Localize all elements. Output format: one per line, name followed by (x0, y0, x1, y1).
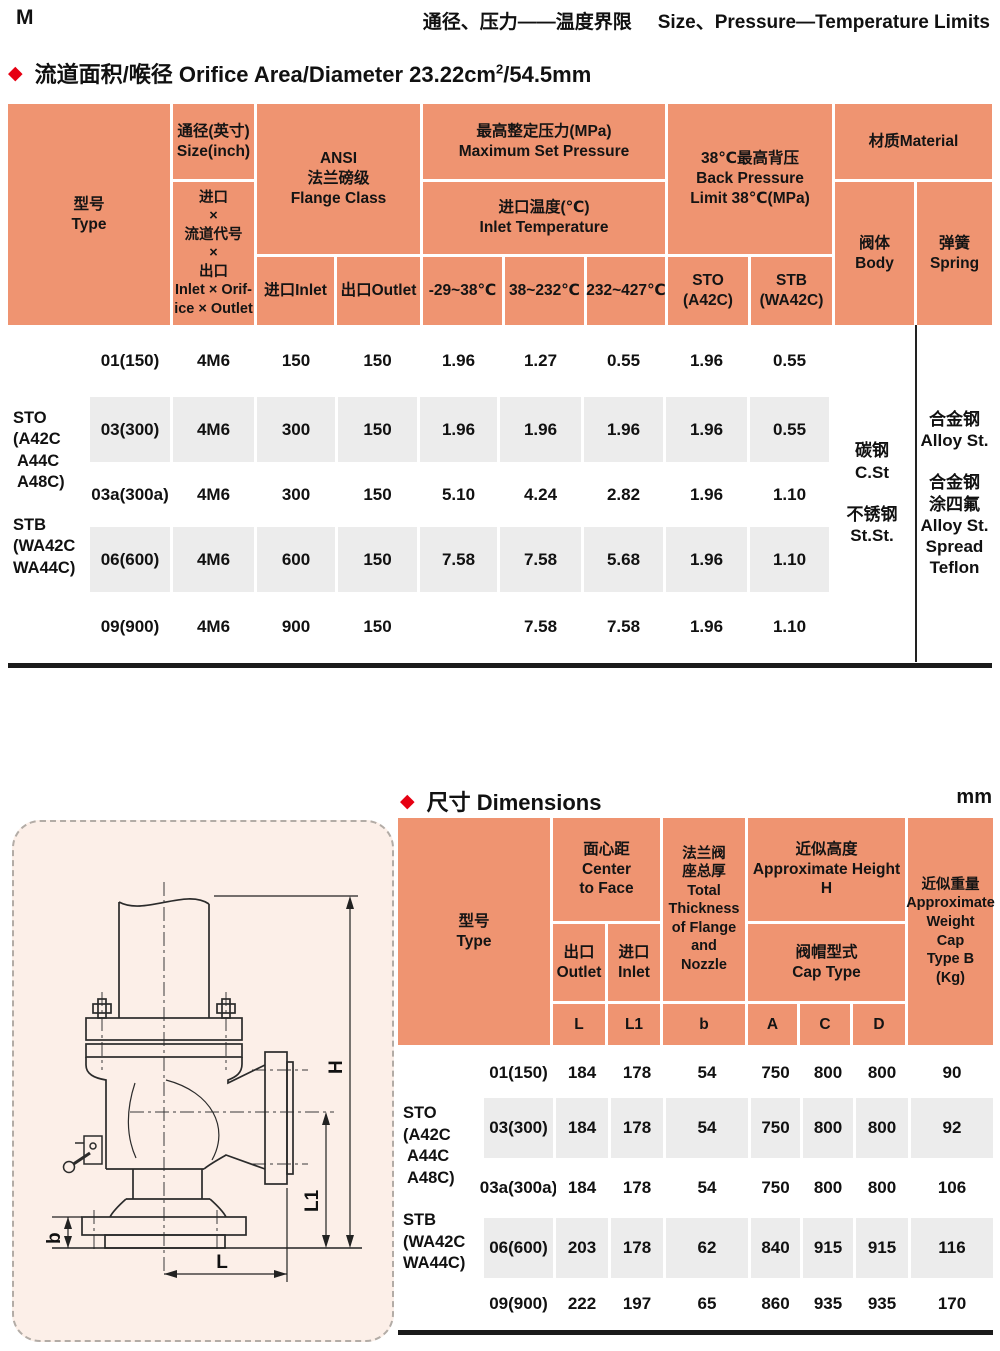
th-stb: STB (WA42C) (751, 257, 832, 325)
page-title-zh: 通径、压力——温度界限 (423, 7, 632, 34)
dimensions-title-text: 尺寸 Dimensions (427, 785, 602, 817)
unit-label: mm (956, 786, 992, 809)
page-letter: M (16, 6, 34, 30)
body-material-cell: 碳钢 C.St 不锈钢 St.St. (832, 325, 912, 662)
cell: 197 (611, 1278, 663, 1330)
cell: 5.68 (584, 527, 663, 592)
bore-curves (128, 1080, 219, 1160)
cell: 300 (257, 462, 335, 527)
th2-outlet: 出口 Outlet (553, 924, 605, 1001)
cell: 7.58 (500, 527, 581, 592)
cell: 1.96 (420, 325, 497, 397)
cell: 860 (751, 1278, 800, 1330)
cell: 106 (911, 1158, 993, 1218)
page-title: 通径、压力——温度界限 Size、Pressure—Temperature Li… (423, 7, 990, 34)
diamond-icon: ◆ (8, 64, 23, 83)
cell: 62 (666, 1218, 748, 1278)
cell: 1.10 (750, 462, 829, 527)
cell: 0.55 (750, 325, 829, 397)
cell: 800 (803, 1048, 853, 1098)
th2-center-to-face: 面心距 Center to Face (553, 818, 660, 921)
cell: 0.55 (584, 325, 663, 397)
th-inlet-orifice-outlet: 进口 × 流道代号 × 出口 Inlet × Orif- ice × Outle… (173, 182, 254, 325)
cell: 4M6 (173, 527, 254, 592)
cell: 935 (803, 1278, 853, 1330)
th-spring: 弹簧 Spring (917, 182, 992, 325)
test-lever (64, 1136, 103, 1173)
cell: 178 (611, 1218, 663, 1278)
cell (420, 592, 497, 662)
table1-bottom-rule (8, 663, 992, 668)
cell: 1.96 (666, 325, 747, 397)
cell: 170 (911, 1278, 993, 1330)
cell: 54 (666, 1158, 748, 1218)
cell: 0.55 (750, 397, 829, 462)
th-material: 材质Material (835, 104, 992, 179)
valve-drawing: H L1 b L (14, 822, 392, 1340)
th2-total-thickness: 法兰阀 座总厚 Total Thickness of Flange and No… (663, 818, 745, 1001)
cell: 750 (751, 1048, 800, 1098)
cell: 54 (666, 1048, 748, 1098)
cell: 09(900) (90, 592, 170, 662)
dim-label-l1: L1 (302, 1189, 323, 1212)
th2-approx-height: 近似高度 Approximate Height H (748, 818, 905, 921)
th2-D: D (853, 1004, 905, 1045)
cell: 222 (556, 1278, 608, 1330)
cell: 840 (751, 1218, 800, 1278)
cell: 09(900) (484, 1278, 553, 1330)
th2-L1: L1 (608, 1004, 660, 1045)
th2-inlet: 进口 Inlet (608, 924, 660, 1001)
cell: 03a(300a) (484, 1158, 553, 1218)
cell: 03a(300a) (90, 462, 170, 527)
cell: 800 (803, 1098, 853, 1158)
cell: 116 (911, 1218, 993, 1278)
cell: 03(300) (90, 397, 170, 462)
cell: 1.10 (750, 527, 829, 592)
type-series-label: STO (A42C A44C A48C) STB (WA42C WA44C) (398, 1048, 481, 1330)
cell: 65 (666, 1278, 748, 1330)
th2-type: 型号 Type (398, 818, 550, 1045)
dimensions-table-body: STO (A42C A44C A48C) STB (WA42C WA44C) 0… (398, 1048, 993, 1330)
th-type: 型号 Type (8, 104, 170, 325)
cell: 1.96 (420, 397, 497, 462)
cell: 1.96 (666, 397, 747, 462)
cell: 184 (556, 1048, 608, 1098)
cell: 5.10 (420, 462, 497, 527)
th2-L: L (553, 1004, 605, 1045)
cell: 1.96 (584, 397, 663, 462)
pressure-table-header: 型号 Type 通径(英寸) Size(inch) 进口 × 流道代号 × 出口… (8, 104, 992, 325)
cell: 54 (666, 1098, 748, 1158)
cell: 150 (338, 397, 417, 462)
cell: 4.24 (500, 462, 581, 527)
th-flange-outlet: 出口Outlet (337, 257, 420, 325)
cell: 1.96 (666, 592, 747, 662)
th-sto: STO (A42C) (668, 257, 748, 325)
th-temp-2: 38~232℃ (505, 257, 584, 325)
cell: 90 (911, 1048, 993, 1098)
dimensions-table-header: 型号 Type 面心距 Center to Face 出口 Outlet 进口 … (398, 818, 993, 1045)
cell: 01(150) (484, 1048, 553, 1098)
cell: 150 (338, 325, 417, 397)
th2-A: A (748, 1004, 797, 1045)
cell: 1.10 (750, 592, 829, 662)
th-flange-inlet: 进口Inlet (257, 257, 334, 325)
spring-material-cell: 合金钢 Alloy St. 合金钢 涂四氟 Alloy St. Spread T… (915, 325, 992, 662)
dim-label-b: b (44, 1232, 65, 1244)
cell: 915 (803, 1218, 853, 1278)
cell: 150 (338, 592, 417, 662)
cell: 06(600) (90, 527, 170, 592)
cell: 150 (257, 325, 335, 397)
dimension-lines (52, 896, 362, 1282)
cell: 06(600) (484, 1218, 553, 1278)
cell: 92 (911, 1098, 993, 1158)
cell: 2.82 (584, 462, 663, 527)
th-temp-3: 232~427℃ (587, 257, 665, 325)
cell: 7.58 (500, 592, 581, 662)
dim-label-h: H (326, 1060, 347, 1074)
th-temp-1: -29~38℃ (423, 257, 502, 325)
cell: 935 (856, 1278, 908, 1330)
cell: 800 (856, 1098, 908, 1158)
centerlines (94, 882, 334, 1274)
cell: 178 (611, 1158, 663, 1218)
cell: 184 (556, 1158, 608, 1218)
cell: 300 (257, 397, 335, 462)
th-max-set-pressure: 最高整定压力(MPa) Maximum Set Pressure (423, 104, 665, 179)
cell: 7.58 (584, 592, 663, 662)
th-back-pressure: 38℃最高背压 Back Pressure Limit 38℃(MPa) (668, 104, 832, 254)
cell: 1.96 (666, 527, 747, 592)
cell: 1.27 (500, 325, 581, 397)
diamond-icon: ◆ (400, 792, 415, 811)
catalog-page: M 通径、压力——温度界限 Size、Pressure—Temperature … (0, 0, 1000, 1351)
cell: 01(150) (90, 325, 170, 397)
cell: 4M6 (173, 325, 254, 397)
cell: 203 (556, 1218, 608, 1278)
th2-approx-weight: 近似重量 Approximate Weight Cap Type B (Kg) (908, 818, 993, 1045)
cell: 178 (611, 1048, 663, 1098)
th2-C: C (800, 1004, 850, 1045)
th-inlet-temperature: 进口温度(℃) Inlet Temperature (423, 182, 665, 254)
cell: 800 (856, 1158, 908, 1218)
valve-drawing-panel: H L1 b L (12, 820, 394, 1342)
cell: 03(300) (484, 1098, 553, 1158)
th2-cap-type: 阀帽型式 Cap Type (748, 924, 905, 1001)
cell: 1.96 (666, 462, 747, 527)
cell: 4M6 (173, 592, 254, 662)
cell: 7.58 (420, 527, 497, 592)
cell: 800 (856, 1048, 908, 1098)
cell: 900 (257, 592, 335, 662)
cell: 184 (556, 1098, 608, 1158)
th-size-inch: 通径(英寸) Size(inch) (173, 104, 254, 179)
cell: 750 (751, 1158, 800, 1218)
dim-label-l: L (216, 1252, 228, 1273)
type-series-label: STO (A42C A44C A48C) STB (WA42C WA44C) (8, 325, 87, 662)
dimensions-section-title: ◆ 尺寸 Dimensions (400, 785, 601, 817)
cell: 4M6 (173, 462, 254, 527)
orifice-section-title: ◆ 流道面积/喉径 Orifice Area/Diameter 23.22cm2… (8, 57, 591, 89)
cell: 800 (803, 1158, 853, 1218)
page-title-en: Size、Pressure—Temperature Limits (658, 7, 990, 34)
table2-bottom-rule (398, 1330, 993, 1335)
th2-b: b (663, 1004, 745, 1045)
cell: 1.96 (500, 397, 581, 462)
cell: 750 (751, 1098, 800, 1158)
cell: 150 (338, 527, 417, 592)
cell: 4M6 (173, 397, 254, 462)
cell: 178 (611, 1098, 663, 1158)
th-body: 阀体 Body (835, 182, 914, 325)
pressure-table-body: STO (A42C A44C A48C) STB (WA42C WA44C) 0… (8, 325, 992, 662)
valve-outline (82, 899, 293, 1248)
cell: 150 (338, 462, 417, 527)
orifice-title-text: 流道面积/喉径 Orifice Area/Diameter 23.22cm2/5… (35, 57, 592, 89)
th-ansi-flange-class: ANSI 法兰磅级 Flange Class (257, 104, 420, 254)
cell: 915 (856, 1218, 908, 1278)
cell: 600 (257, 527, 335, 592)
